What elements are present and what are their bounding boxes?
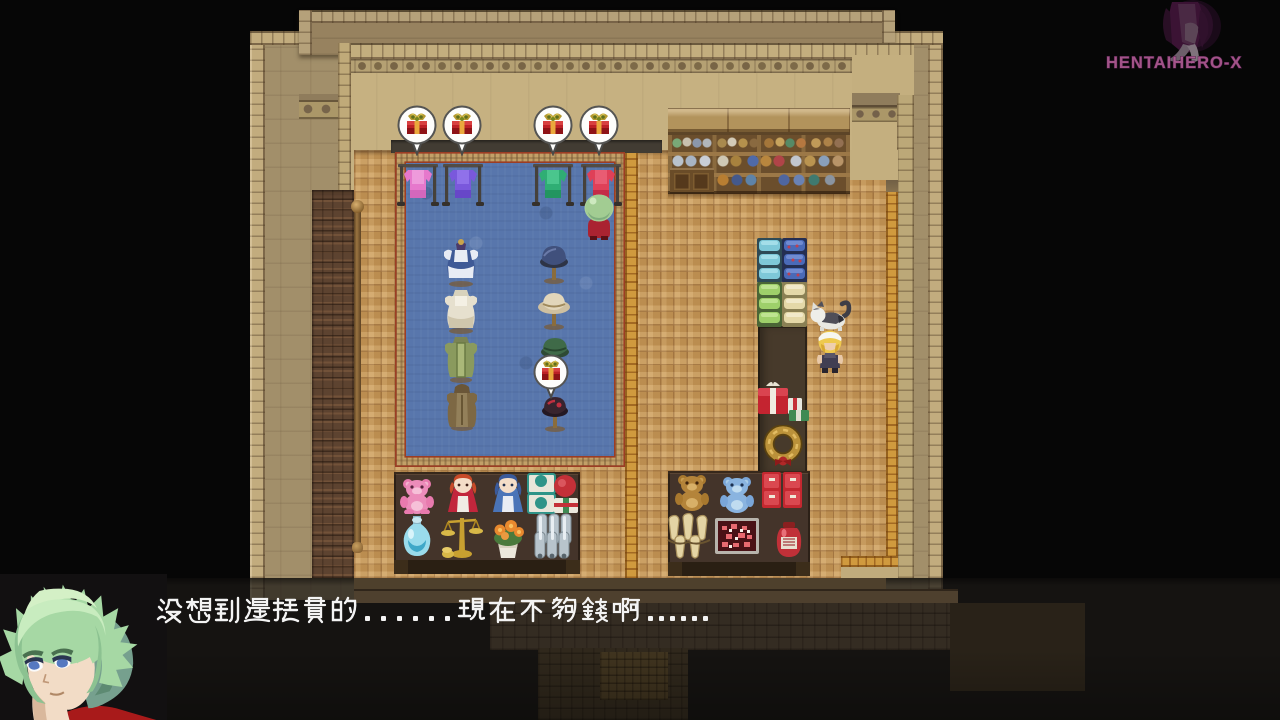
svg-text:HENTAIHERO-X: HENTAIHERO-X [1106,54,1242,72]
